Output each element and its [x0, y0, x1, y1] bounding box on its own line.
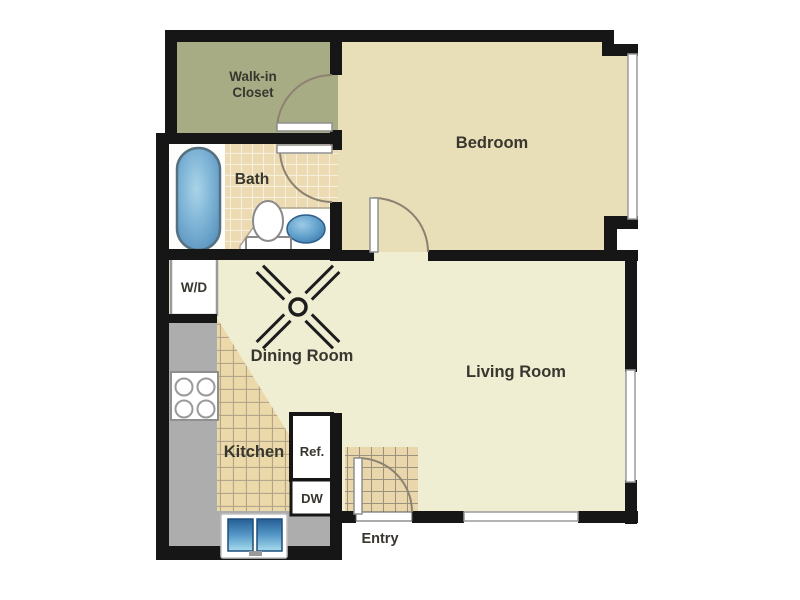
bathtub-icon	[177, 148, 220, 250]
living-side-window	[626, 370, 635, 482]
wall-left-upper	[165, 30, 177, 142]
dishwasher-label: DW	[301, 491, 323, 506]
floor-plan: Walk-in Closet Bedroom Bath W/D Dining R…	[0, 0, 800, 600]
wall-bath-bottom	[156, 249, 342, 260]
outside-patch-bedroom-notch	[617, 229, 638, 251]
washer-dryer-label: W/D	[181, 280, 207, 295]
wall-kitchen-right	[330, 413, 342, 560]
wall-closet-bottom	[156, 133, 342, 144]
wall-top	[165, 30, 614, 42]
floor-plan-page: Walk-in Closet Bedroom Bath W/D Dining R…	[0, 0, 800, 600]
bedroom-label: Bedroom	[456, 134, 528, 152]
living-room-label: Living Room	[466, 363, 566, 381]
kitchen-label: Kitchen	[224, 443, 285, 461]
wall-bedroom-bottom-left	[342, 250, 374, 261]
outside-patch-top-right	[614, 20, 800, 44]
refrigerator-label: Ref.	[300, 444, 325, 459]
entry-label: Entry	[361, 531, 398, 547]
entry-threshold	[356, 512, 412, 521]
living-bottom-window	[464, 512, 578, 521]
wall-living-bottom-b	[412, 511, 464, 523]
wall-closet-right-top	[330, 30, 342, 75]
walk-in-closet-label-line2: Closet	[232, 85, 274, 100]
stove-burners-icon	[171, 372, 218, 420]
wall-bedroom-jog-v	[604, 216, 617, 261]
wall-wd-bottom	[156, 314, 217, 323]
wall-left-lower	[156, 136, 169, 560]
dining-room-label: Dining Room	[251, 347, 354, 365]
bath-sink-icon	[287, 215, 325, 243]
bath-label: Bath	[235, 171, 269, 188]
wall-living-bottom-c	[578, 511, 638, 523]
walk-in-closet-label-line1: Walk-in	[229, 69, 277, 84]
bedroom-window	[628, 54, 637, 219]
kitchen-sink-icon	[221, 514, 287, 558]
wall-living-right	[625, 250, 637, 372]
